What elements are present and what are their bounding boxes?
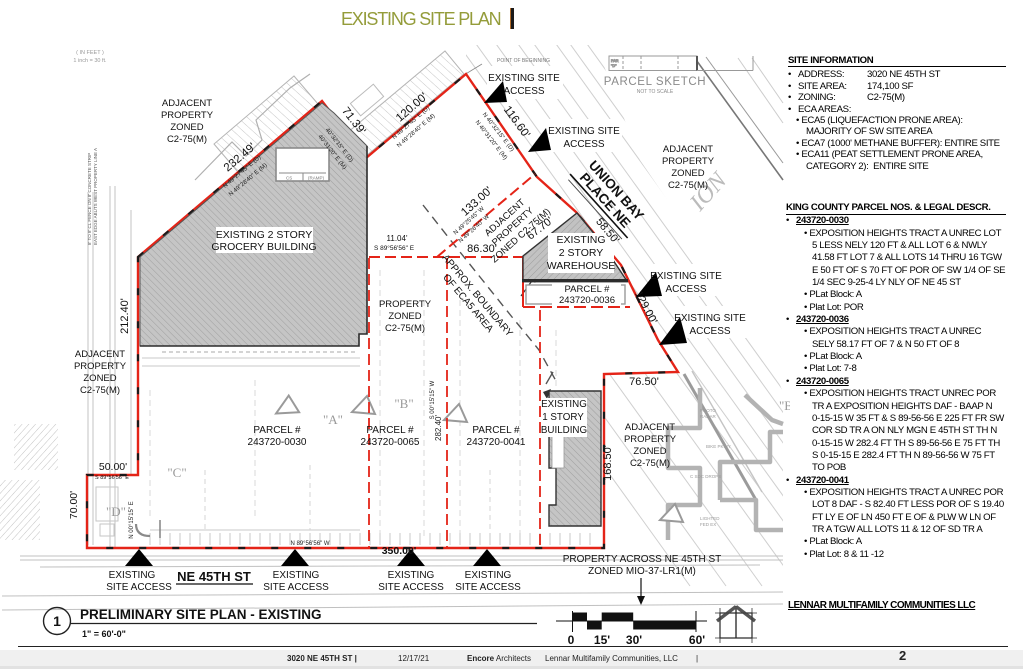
svg-text:RADAR: RADAR	[700, 414, 717, 419]
svg-text:76.50': 76.50'	[629, 376, 659, 388]
svg-text:WAREHOUSE: WAREHOUSE	[547, 260, 615, 272]
svg-text:282.40': 282.40'	[434, 415, 443, 441]
svg-text:SITE ACCESS: SITE ACCESS	[378, 582, 444, 593]
svg-text:"B": "B"	[394, 396, 413, 411]
svg-text:N 00°15'15" E: N 00°15'15" E	[129, 501, 135, 538]
svg-text:0: 0	[568, 633, 575, 647]
svg-text:SITE ACCESS: SITE ACCESS	[455, 582, 521, 593]
svg-text:PRELIMINARY SITE PLAN - EXISTI: PRELIMINARY SITE PLAN - EXISTING	[80, 607, 322, 622]
svg-text:C2-75(M): C2-75(M)	[167, 134, 207, 145]
svg-text:8' TO 8' CL FENCE ON 8' CONCRE: 8' TO 8' CL FENCE ON 8' CONCRETE STRIP	[87, 153, 92, 245]
svg-text:15': 15'	[594, 633, 610, 647]
svg-text:1" = 60'-0": 1" = 60'-0"	[82, 629, 126, 639]
svg-text:NE 45TH ST: NE 45TH ST	[177, 569, 251, 584]
svg-text:NOT TO SCALE: NOT TO SCALE	[637, 89, 674, 95]
svg-text:APPROX. BOUNDARY: APPROX. BOUNDARY	[439, 253, 514, 340]
svg-text:243720-0030: 243720-0030	[248, 437, 307, 448]
svg-text:ACCESS: ACCESS	[503, 86, 544, 97]
svg-text:(RAMP): (RAMP)	[308, 176, 324, 181]
svg-text:EXISTING SITE: EXISTING SITE	[674, 313, 746, 324]
svg-text:C SDC DROPS: C SDC DROPS	[690, 474, 721, 479]
svg-text:POINT OF BEGINNING: POINT OF BEGINNING	[497, 58, 550, 64]
svg-text:S 89°56'56" E: S 89°56'56" E	[95, 475, 129, 481]
svg-text:SITE ACCESS: SITE ACCESS	[106, 582, 172, 593]
svg-text:ACCESS: ACCESS	[689, 326, 730, 337]
svg-text:70.00': 70.00'	[68, 491, 80, 519]
svg-text:"C": "C"	[167, 465, 186, 480]
svg-text:EXISTING SITE: EXISTING SITE	[650, 271, 722, 282]
svg-text:PROPERTY: PROPERTY	[161, 110, 214, 121]
svg-text:11.04': 11.04'	[387, 234, 408, 243]
svg-text:243720-0065: 243720-0065	[361, 437, 420, 448]
svg-text:ADJACENT: ADJACENT	[625, 422, 675, 433]
svg-text:ACCESS: ACCESS	[563, 139, 604, 150]
svg-text:BUILDING: BUILDING	[541, 425, 587, 436]
svg-text:1: 1	[53, 613, 61, 629]
svg-text:ZONED: ZONED	[170, 122, 203, 133]
svg-text:EXISTING: EXISTING	[465, 570, 512, 581]
svg-text:PROPERTY: PROPERTY	[379, 299, 432, 310]
svg-text:SITE ACCESS: SITE ACCESS	[263, 582, 329, 593]
svg-text:2 STORY: 2 STORY	[559, 247, 604, 259]
svg-text:"D": "D"	[106, 504, 126, 519]
svg-text:"A": "A"	[323, 412, 343, 427]
svg-text:"D": "D"	[611, 64, 617, 68]
svg-text:C2-75(M): C2-75(M)	[630, 458, 670, 469]
svg-text:LIGHTED: LIGHTED	[700, 516, 720, 521]
svg-text:GROCERY BUILDING: GROCERY BUILDING	[211, 241, 316, 253]
svg-text:EXISTING: EXISTING	[556, 234, 605, 246]
svg-text:PARCEL #: PARCEL #	[472, 425, 520, 436]
svg-text:PARCEL SKETCH: PARCEL SKETCH	[604, 76, 706, 88]
svg-text:C2-75(M): C2-75(M)	[668, 180, 708, 191]
svg-text:C2-75(M): C2-75(M)	[80, 385, 120, 396]
svg-text:N 89°56'56" W: N 89°56'56" W	[290, 541, 329, 547]
svg-text:S 89°56'56" E: S 89°56'56" E	[374, 244, 415, 252]
svg-text:EXISTING: EXISTING	[273, 570, 320, 581]
svg-text:50.00': 50.00'	[99, 461, 127, 473]
svg-text:PHOTO: PHOTO	[700, 408, 716, 413]
svg-text:EXISTING: EXISTING	[388, 570, 435, 581]
svg-text:S 00°15'15" W: S 00°15'15" W	[430, 380, 436, 419]
svg-text:ZONED: ZONED	[633, 446, 666, 457]
svg-text:PROPERTY: PROPERTY	[624, 434, 677, 445]
svg-text:350.00': 350.00'	[382, 545, 417, 557]
svg-text:C2-75(M): C2-75(M)	[385, 323, 425, 334]
svg-text:ADJACENT: ADJACENT	[75, 349, 125, 360]
svg-text:ACCESS: ACCESS	[665, 284, 706, 295]
svg-text:EXISTING 2 STORY: EXISTING 2 STORY	[216, 229, 312, 241]
svg-text:86.30': 86.30'	[467, 243, 497, 255]
svg-text:168.50': 168.50'	[602, 445, 614, 481]
svg-text:PROPERTY: PROPERTY	[74, 361, 127, 372]
svg-text:30': 30'	[626, 633, 642, 647]
svg-text:EXISTING SITE: EXISTING SITE	[488, 73, 560, 84]
svg-text:PROPERTY: PROPERTY	[662, 156, 715, 167]
svg-text:ZONED: ZONED	[388, 311, 421, 322]
svg-text:60': 60'	[689, 633, 705, 647]
svg-text:CS: CS	[286, 176, 292, 181]
svg-text:PROPERTY ACROSS NE 45TH ST: PROPERTY ACROSS NE 45TH ST	[563, 554, 722, 565]
svg-text:PARCEL #: PARCEL #	[366, 425, 414, 436]
svg-text:EAST EDGE ABUTS WEST PROPERTY: EAST EDGE ABUTS WEST PROPERTY LINE A	[93, 148, 98, 245]
svg-text:1 inch = 30 ft.: 1 inch = 30 ft.	[73, 58, 107, 64]
svg-text:EXISTING SITE: EXISTING SITE	[548, 126, 620, 137]
svg-text:FED EX: FED EX	[700, 522, 716, 527]
svg-text:PARCEL #: PARCEL #	[565, 284, 611, 295]
svg-text:PAR: PAR	[611, 59, 619, 63]
svg-text:PARCEL #: PARCEL #	[253, 425, 301, 436]
svg-text:ZONED: ZONED	[83, 373, 116, 384]
svg-text:243720-0041: 243720-0041	[467, 437, 526, 448]
svg-text:( IN FEET ): ( IN FEET )	[76, 50, 104, 56]
svg-text:116.60': 116.60'	[501, 104, 532, 141]
svg-text:EXISTING: EXISTING	[541, 399, 587, 410]
svg-text:243720-0036: 243720-0036	[559, 295, 615, 306]
svg-text:ADJACENT: ADJACENT	[162, 98, 212, 109]
svg-text:1 STORY: 1 STORY	[542, 412, 584, 423]
svg-text:ZONED: ZONED	[671, 168, 704, 179]
svg-text:ZONED MIO-37-LR1(M): ZONED MIO-37-LR1(M)	[588, 566, 696, 577]
svg-text:EXISTING: EXISTING	[109, 570, 156, 581]
svg-text:ADJACENT: ADJACENT	[663, 144, 713, 155]
svg-text:212.40': 212.40'	[119, 298, 131, 334]
svg-text:BIKE PKWY: BIKE PKWY	[706, 444, 731, 449]
